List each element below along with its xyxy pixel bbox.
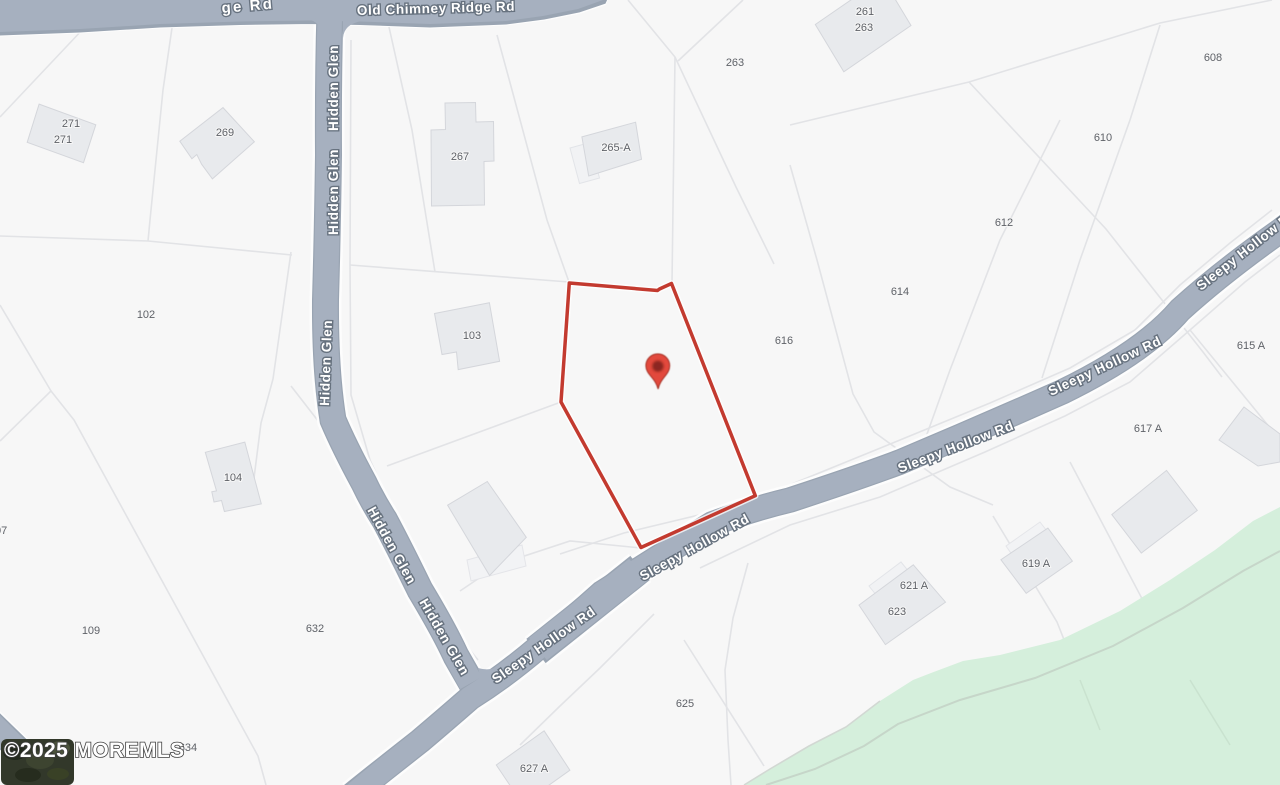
svg-text:263: 263 <box>855 22 873 34</box>
svg-text:614: 614 <box>891 286 909 298</box>
svg-text:102: 102 <box>137 309 155 321</box>
svg-text:263: 263 <box>726 57 744 69</box>
svg-text:103: 103 <box>463 330 481 342</box>
svg-text:271: 271 <box>54 134 72 146</box>
svg-text:627 A: 627 A <box>520 763 549 775</box>
svg-text:619 A: 619 A <box>1022 558 1051 570</box>
svg-text:608: 608 <box>1204 52 1222 64</box>
svg-text:267: 267 <box>451 151 469 163</box>
svg-text:617 A: 617 A <box>1134 423 1163 435</box>
svg-text:623: 623 <box>888 606 906 618</box>
svg-text:109: 109 <box>82 625 100 637</box>
svg-text:621 A: 621 A <box>900 580 929 592</box>
svg-text:Hidden Glen: Hidden Glen <box>326 149 341 235</box>
svg-text:104: 104 <box>224 472 242 484</box>
svg-text:269: 269 <box>216 127 234 139</box>
svg-text:632: 632 <box>306 623 324 635</box>
svg-text:625: 625 <box>676 698 694 710</box>
svg-text:615 A: 615 A <box>1237 340 1266 352</box>
svg-text:610: 610 <box>1094 132 1112 144</box>
svg-text:271: 271 <box>62 118 80 130</box>
svg-text:107: 107 <box>0 525 7 537</box>
svg-text:616: 616 <box>775 335 793 347</box>
svg-text:©2025 MOREMLS: ©2025 MOREMLS <box>4 739 185 762</box>
svg-text:265-A: 265-A <box>601 142 631 154</box>
svg-text:261: 261 <box>856 6 874 18</box>
svg-text:Hidden Glen: Hidden Glen <box>317 320 335 407</box>
svg-text:Hidden Glen: Hidden Glen <box>326 45 341 131</box>
svg-text:612: 612 <box>995 217 1013 229</box>
